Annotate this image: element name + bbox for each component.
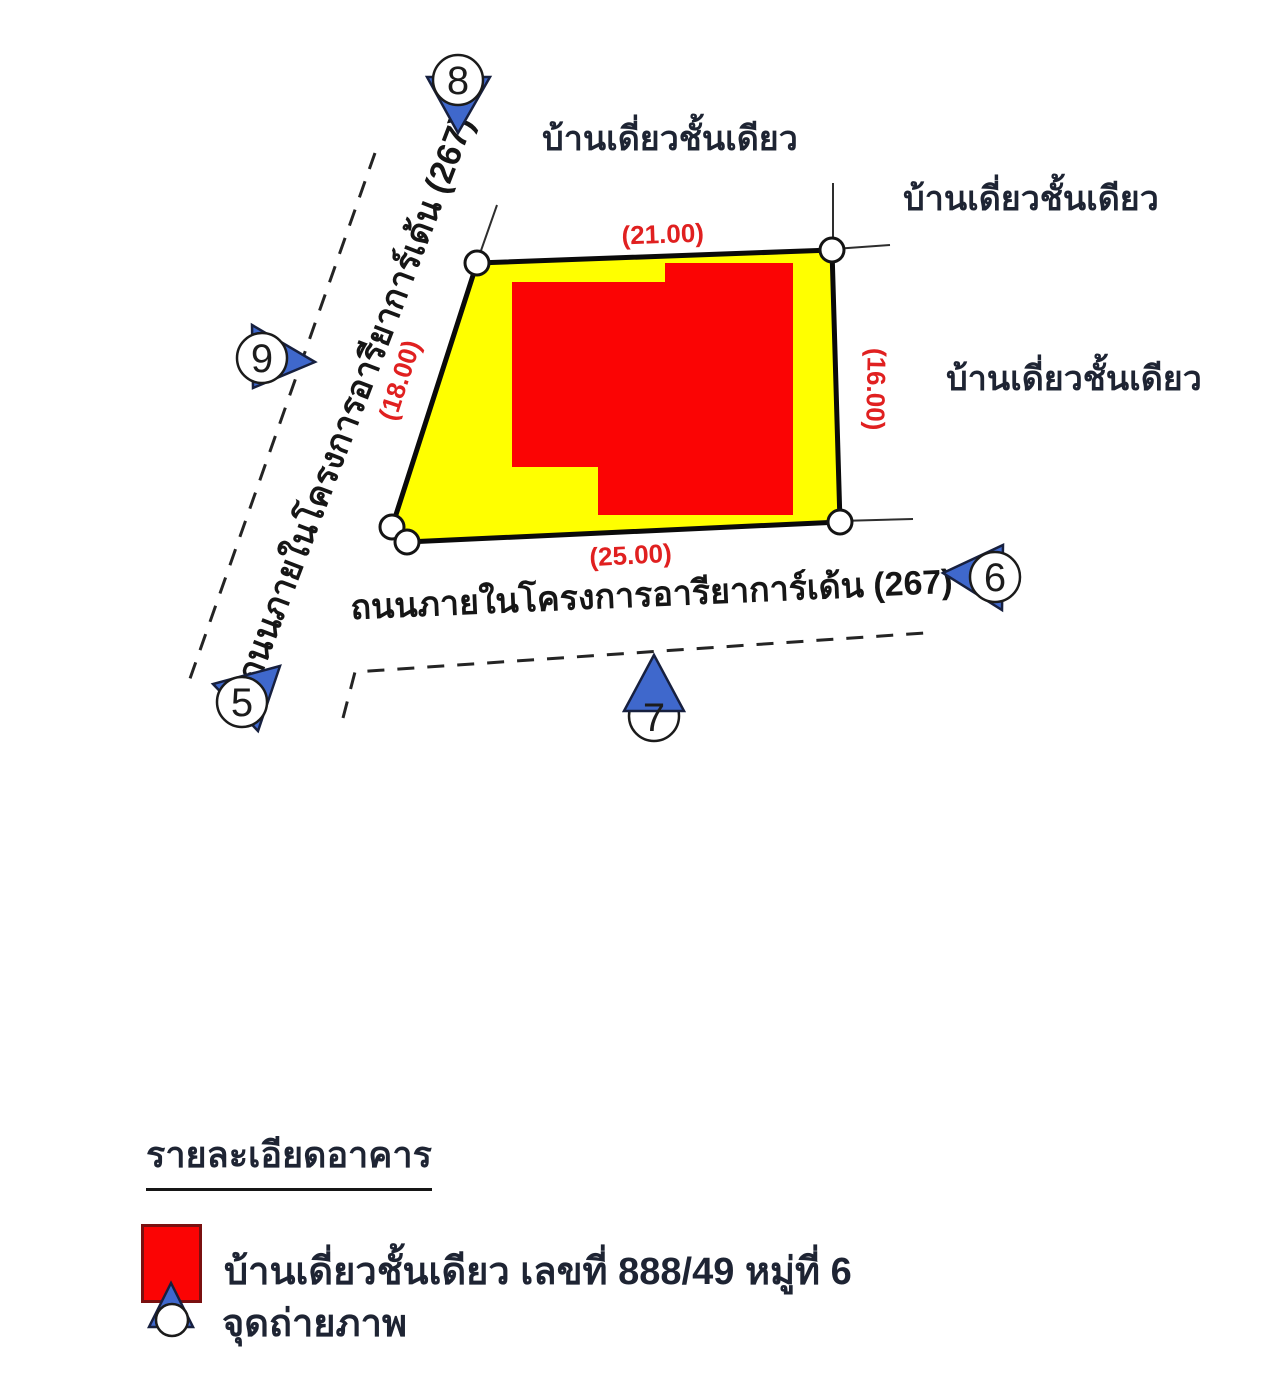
plot-vertex-bottom-left-2 [395,530,419,554]
plot-vertex-top-left [465,251,489,275]
plot-vertex-top-right [820,238,844,262]
photo-marker-6: 6 [943,545,1020,610]
legend-photo-label: จุดถ่ายภาพ [222,1292,407,1353]
photo-marker-5: 5 [213,666,280,731]
plot-vertex-bottom-right [828,510,852,534]
road-label-bottom: ถนนภายในโครงการอารียาการ์เด้น (267) [350,561,954,627]
neighbor-label-top: บ้านเดี่ยวชั้นเดียว [542,113,798,158]
site-plan-page: (21.00) (18.00) (16.00) (25.00) บ้านเดี่… [0,0,1280,1397]
marker-6-number: 6 [984,556,1006,600]
marker-8-number: 8 [447,59,469,103]
marker-7-number: 7 [643,696,665,740]
legend-title: รายละเอียดอาคาร [146,1126,432,1191]
neighbor-label-right-upper: บ้านเดี่ยวชั้นเดียว [903,173,1159,218]
photo-point-circle-icon [156,1304,188,1336]
photo-point-icon [147,1278,197,1340]
marker-5-number: 5 [231,681,253,725]
marker-9-number: 9 [251,337,273,381]
photo-marker-9: 9 [237,325,315,388]
dimension-top: (21.00) [621,218,704,251]
dimension-bottom: (25.00) [589,538,673,572]
dimension-right: (16.00) [860,348,891,431]
photo-marker-8: 8 [427,55,490,133]
photo-marker-7: 7 [624,655,684,741]
neighbor-label-right-lower: บ้านเดี่ยวชั้นเดียว [946,353,1202,398]
